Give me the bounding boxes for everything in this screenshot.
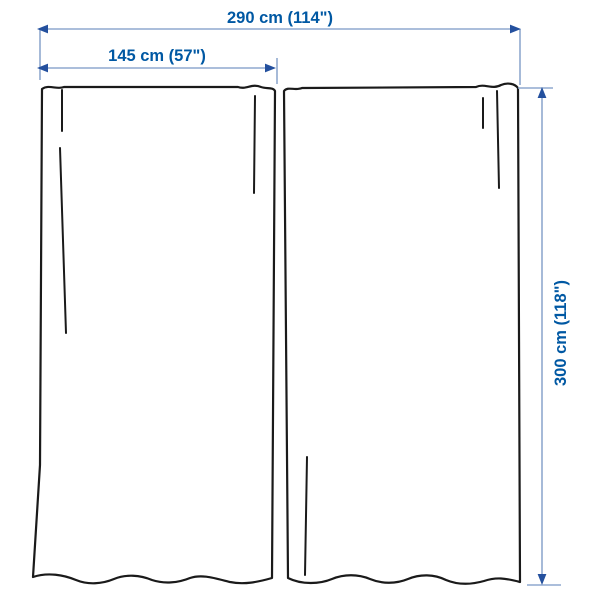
arrowhead-down-icon <box>538 574 547 585</box>
curtain-dimension-diagram: 290 cm (114") 145 cm (57") 300 cm (118") <box>0 0 600 600</box>
height-label: 300 cm (118") <box>552 280 570 386</box>
height-dimension: 300 cm (118") <box>518 87 570 585</box>
right-panel-outline <box>284 84 520 584</box>
left-panel-outline <box>33 86 275 584</box>
left-curtain-panel <box>33 86 275 584</box>
total-width-label: 290 cm (114") <box>227 9 333 27</box>
right-curtain-panel <box>284 84 520 584</box>
panel-width-dimension: 145 cm (57") <box>37 47 277 84</box>
left-panel-fold-lines <box>60 90 255 333</box>
panel-width-label: 145 cm (57") <box>108 47 206 65</box>
arrowhead-left-icon <box>37 25 48 34</box>
arrowhead-left-icon <box>37 64 48 73</box>
arrowhead-right-icon <box>265 64 276 73</box>
diagram-canvas: 290 cm (114") 145 cm (57") 300 cm (118") <box>0 0 600 600</box>
right-panel-fold-lines <box>305 91 499 575</box>
